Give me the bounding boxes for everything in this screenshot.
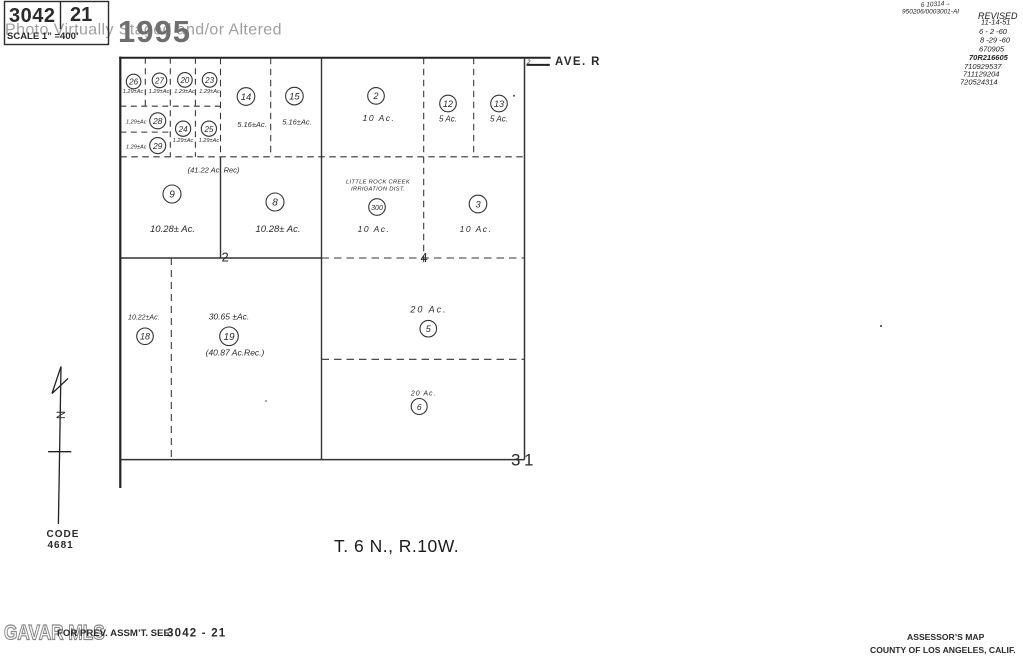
- svg-text:1.29±Ac: 1.29±Ac: [123, 89, 144, 95]
- svg-text:24: 24: [178, 125, 188, 134]
- svg-text:10.28± Ac.: 10.28± Ac.: [256, 224, 301, 235]
- svg-text:20 Ac.: 20 Ac.: [410, 391, 437, 398]
- svg-text:2: 2: [222, 250, 229, 265]
- svg-text:3042 - 21: 3042 - 21: [167, 628, 226, 640]
- svg-text:26: 26: [128, 78, 138, 87]
- svg-text:1.29±Ac: 1.29±Ac: [199, 138, 220, 144]
- svg-text:14: 14: [241, 92, 252, 103]
- svg-text:1995: 1995: [118, 14, 191, 49]
- svg-text:8: 8: [272, 198, 278, 209]
- svg-text:T. 6 N., R.10W.: T. 6 N., R.10W.: [334, 536, 459, 556]
- svg-text:2: 2: [372, 91, 378, 101]
- svg-text:25: 25: [203, 125, 213, 134]
- svg-text:950206/0003001-AI: 950206/0003001-AI: [902, 9, 959, 16]
- svg-text:ASSESSOR’S MAP: ASSESSOR’S MAP: [907, 632, 985, 642]
- svg-text:SCALE 1” =400’: SCALE 1” =400’: [7, 31, 79, 42]
- svg-text:29: 29: [152, 141, 163, 151]
- svg-text:6: 6: [417, 402, 422, 412]
- svg-text:720524314: 720524314: [960, 78, 998, 87]
- svg-text:8 -29 -60: 8 -29 -60: [980, 36, 1011, 45]
- svg-text:3042: 3042: [9, 5, 56, 27]
- svg-text:5 Ac.: 5 Ac.: [439, 115, 457, 124]
- svg-text:5 Ac.: 5 Ac.: [490, 115, 508, 124]
- svg-text:10.22±Ac.: 10.22±Ac.: [128, 315, 160, 322]
- svg-text:(40.87 Ac.Rec.): (40.87 Ac.Rec.): [206, 348, 265, 358]
- svg-text:4681: 4681: [48, 540, 74, 551]
- svg-text:LITTLE ROCK CREEK: LITTLE ROCK CREEK: [346, 180, 411, 186]
- svg-text:CODE: CODE: [47, 529, 80, 540]
- svg-text:1.29±Ac: 1.29±Ac: [126, 144, 147, 150]
- svg-text:4: 4: [421, 250, 428, 265]
- svg-text:11-14-51: 11-14-51: [981, 18, 1010, 27]
- svg-text:70R216605: 70R216605: [969, 53, 1009, 62]
- svg-text:30.65 ±Ac.: 30.65 ±Ac.: [209, 312, 250, 322]
- svg-text:28: 28: [152, 116, 163, 126]
- svg-text:12: 12: [443, 99, 453, 109]
- svg-text:9: 9: [169, 190, 175, 201]
- svg-text:5.16±Ac.: 5.16±Ac.: [282, 118, 312, 127]
- svg-text:15: 15: [289, 91, 300, 102]
- svg-text:5.16±Ac.: 5.16±Ac.: [237, 120, 267, 129]
- svg-text:1.29±Ac: 1.29±Ac: [173, 138, 194, 144]
- svg-text:10 Ac.: 10 Ac.: [358, 224, 391, 234]
- svg-text:3: 3: [475, 200, 481, 211]
- svg-text:10.28± Ac.: 10.28± Ac.: [150, 224, 195, 235]
- svg-text:1.29±Ac: 1.29±Ac: [126, 120, 147, 126]
- svg-text:(41.22 Ac. Rec): (41.22 Ac. Rec): [188, 166, 240, 175]
- svg-text:IRRIGATION DIST.: IRRIGATION DIST.: [351, 187, 405, 193]
- svg-text:300: 300: [371, 205, 383, 212]
- svg-text:27: 27: [154, 76, 164, 85]
- svg-text:AVE. R: AVE. R: [555, 56, 601, 68]
- svg-text:1.29±Ac: 1.29±Ac: [199, 89, 220, 95]
- svg-text:18: 18: [140, 332, 150, 342]
- svg-text:10 Ac.: 10 Ac.: [363, 113, 396, 123]
- svg-text:N: N: [56, 411, 68, 419]
- svg-text:1.29±Ac: 1.29±Ac: [149, 89, 170, 95]
- svg-text:31: 31: [511, 451, 537, 470]
- svg-text:FOR PREV. ASSM’T. SEE:: FOR PREV. ASSM’T. SEE:: [57, 628, 173, 639]
- svg-text:1.29±Ac: 1.29±Ac: [174, 89, 195, 95]
- svg-text:10 Ac.: 10 Ac.: [460, 224, 493, 234]
- svg-text:21: 21: [70, 4, 92, 26]
- svg-text:20 Ac.: 20 Ac.: [409, 305, 447, 315]
- svg-text:20: 20: [179, 76, 189, 85]
- svg-text:23: 23: [204, 76, 214, 85]
- svg-text:19: 19: [223, 332, 235, 343]
- svg-text:COUNTY OF LOS ANGELES, CALIF.: COUNTY OF LOS ANGELES, CALIF.: [870, 645, 1016, 655]
- svg-text:13: 13: [494, 99, 504, 109]
- svg-text:2: 2: [526, 60, 531, 66]
